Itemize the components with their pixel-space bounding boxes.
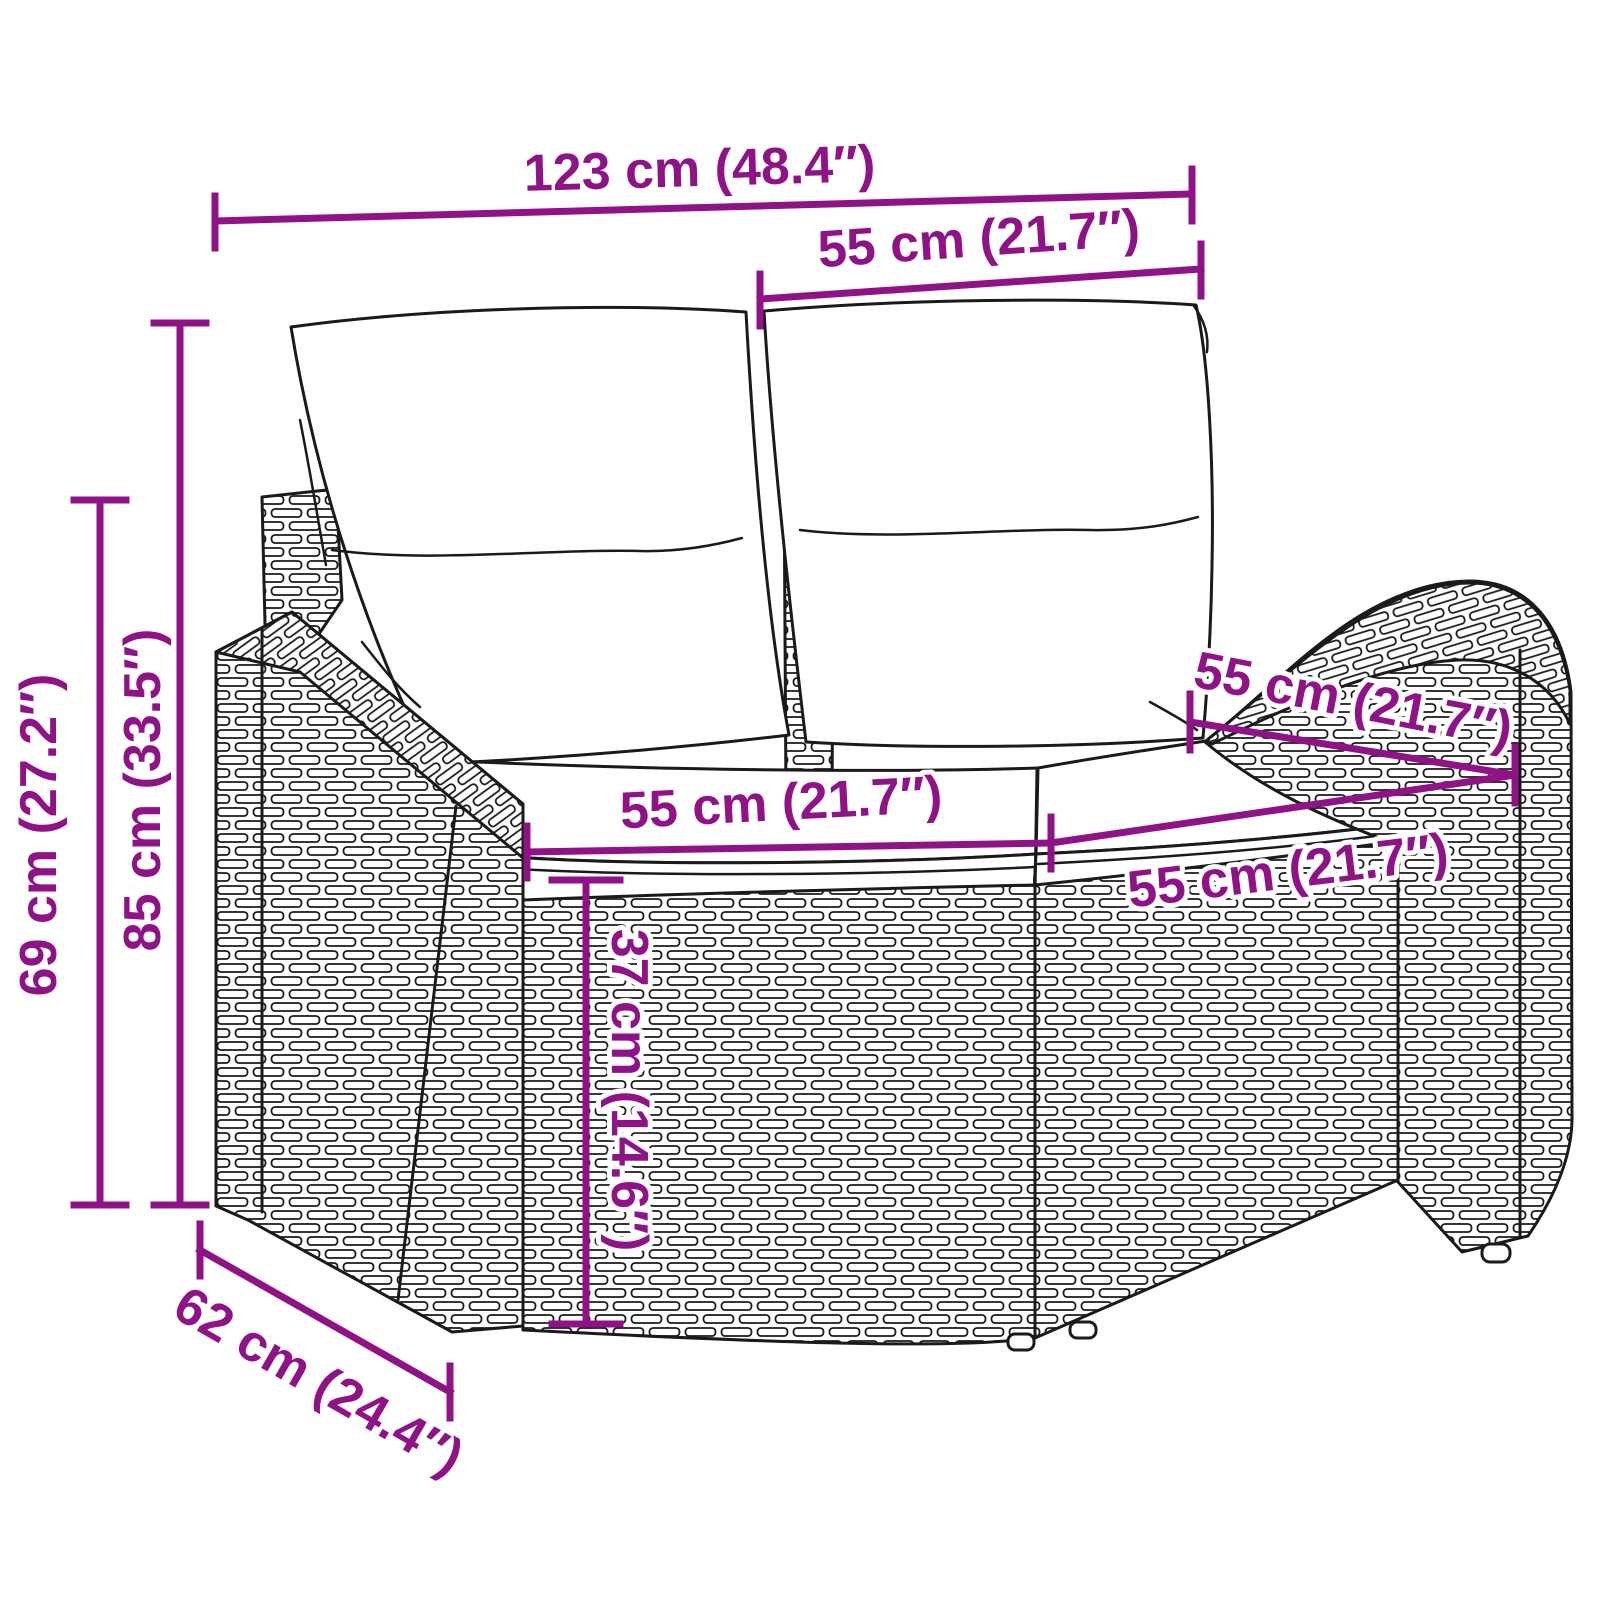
dim-overall-height-label: 85 cm (33.5″): [114, 629, 172, 952]
sofa-foot: [1482, 1244, 1510, 1262]
dim-back-cushion-width-label: 55 cm (21.7″): [816, 199, 1142, 279]
dim-arm-height-label: 69 cm (27.2″): [10, 674, 68, 997]
back-cushion-right: [764, 300, 1212, 746]
sofa-foot: [1008, 1334, 1034, 1350]
sofa-foot: [1070, 1322, 1096, 1338]
dimension-diagram-canvas: 123 cm (48.4″) 55 cm (21.7″) 85 cm (33.5…: [0, 0, 1600, 1600]
dim-seat-height-label: 37 cm (14.6″): [600, 929, 658, 1252]
dim-arm-height: 69 cm (27.2″): [10, 500, 126, 1205]
dim-overall-width-label: 123 cm (48.4″): [523, 135, 876, 203]
dim-overall-height: 85 cm (33.5″): [114, 323, 206, 1205]
product-dimension-diagram: 123 cm (48.4″) 55 cm (21.7″) 85 cm (33.5…: [0, 0, 1600, 1600]
